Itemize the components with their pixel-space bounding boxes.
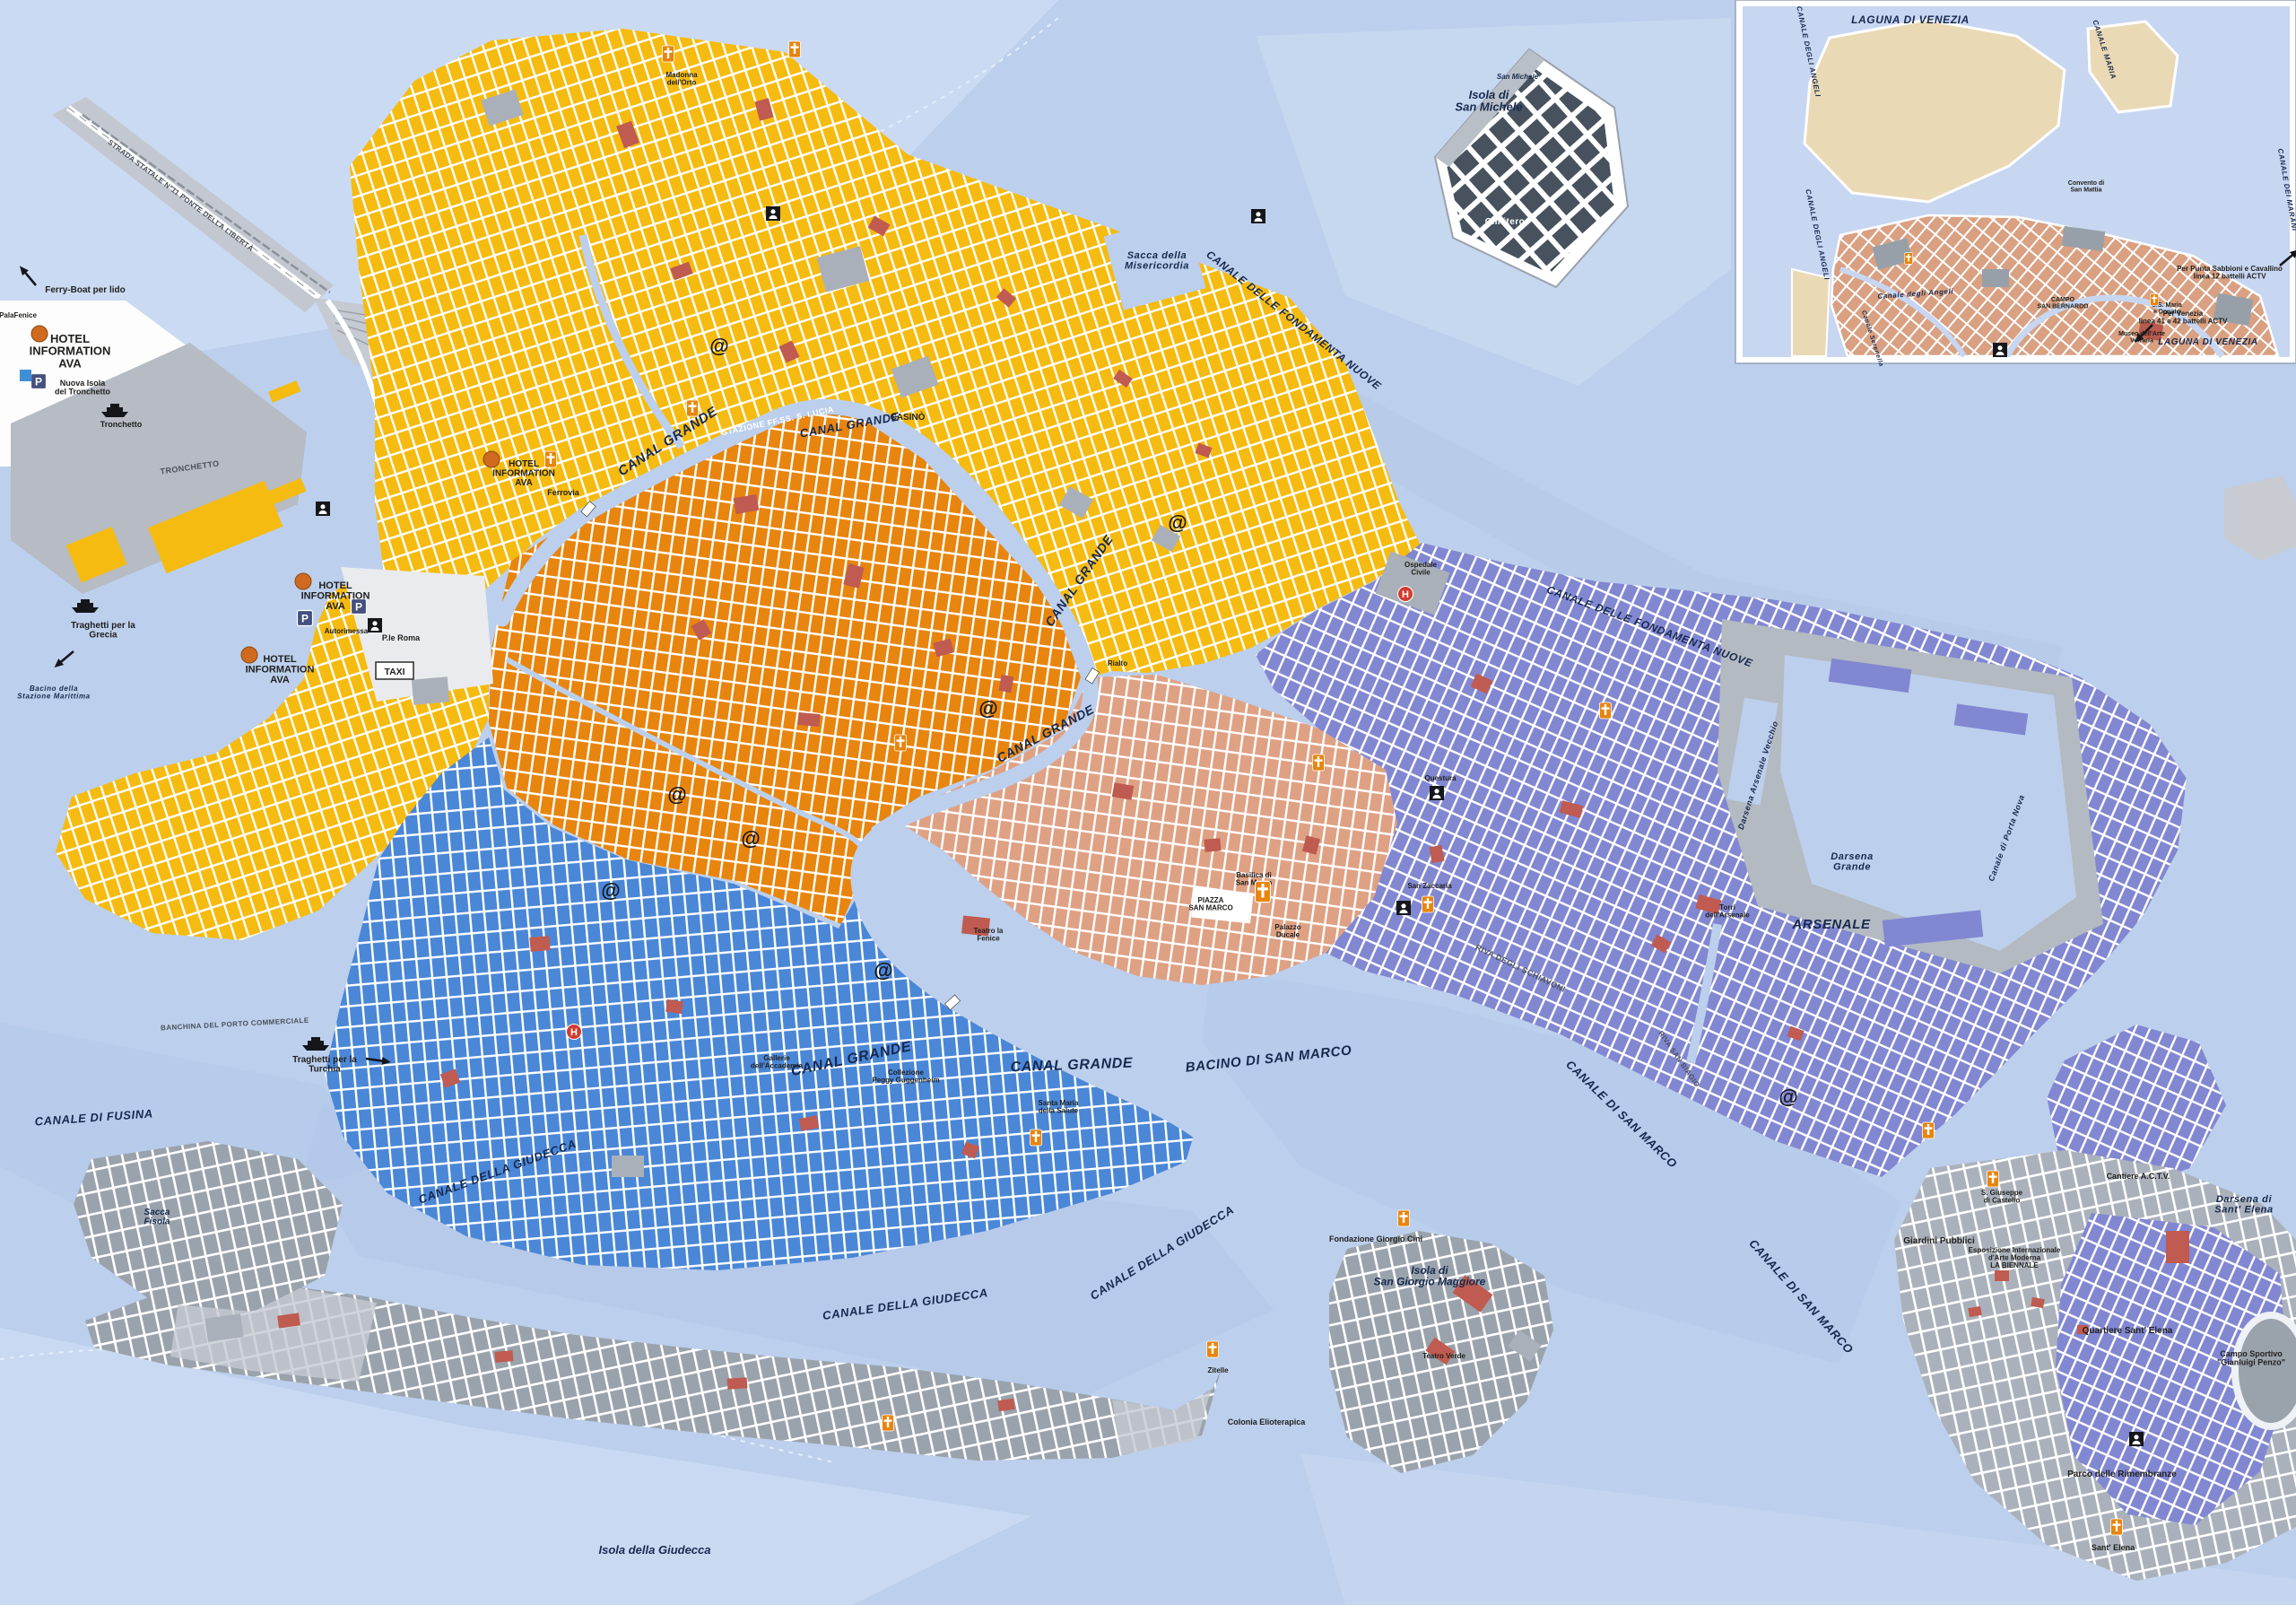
hospital-icon: H: [1398, 587, 1413, 602]
church-icon: [1923, 1122, 1935, 1138]
church-icon: [1987, 1171, 1999, 1187]
internet-point-icon: @: [1168, 511, 1187, 534]
info-point-icon: [1430, 786, 1444, 800]
building-red: [1204, 838, 1221, 852]
label-laguna-di-venezia-2: LAGUNA DI VENEZIA: [2158, 337, 2258, 347]
info-point-icon: [316, 502, 330, 516]
label-san-giuseppe-castello: S. Giuseppedi Castello: [1981, 1189, 2023, 1204]
label-quartiere-sant-elena: Quartiere Sant' Elena: [2083, 1326, 2173, 1336]
hotel-info-dot: [295, 573, 311, 589]
internet-point-icon: @: [601, 879, 620, 902]
info-point-icon: [1396, 901, 1411, 915]
label-fondazione-cini: Fondazione Giorgio Cini: [1329, 1234, 1422, 1243]
label-tronchetto-stop: Tronchetto: [100, 420, 143, 429]
svg-text:TAXI: TAXI: [384, 667, 404, 677]
building-gray: [412, 676, 449, 704]
building-red: [2166, 1231, 2189, 1263]
svg-text:@: @: [874, 959, 892, 981]
label-sant-elena-church: Sant' Elena: [2092, 1543, 2135, 1552]
label-teatro-la-fenice: Teatro laFenice: [974, 927, 1004, 942]
building-gray: [204, 1313, 243, 1341]
svg-text:@: @: [601, 879, 620, 902]
svg-text:P: P: [355, 601, 362, 614]
building-red: [727, 1377, 748, 1390]
label-casino: CASINÒ: [891, 411, 926, 423]
church-icon: [1904, 253, 1912, 265]
internet-point-icon: @: [874, 959, 892, 981]
svg-text:@: @: [709, 335, 728, 357]
svg-text:H: H: [1402, 589, 1409, 600]
inset-murano: [1735, 0, 2296, 363]
hotel-info-dot: [31, 326, 48, 342]
label-sacca-fisola: SaccaFisola: [144, 1208, 170, 1227]
label-campo-sportivo: Campo Sportivo"Gianluigi Penzo": [2217, 1349, 2285, 1366]
label-questura: Questura: [1424, 774, 1457, 782]
label-rialto: Rialto: [1108, 659, 1127, 667]
label-convento-san-mattia: Convento diSan Mattia: [2068, 180, 2104, 193]
label-palafenice: PalaFenice: [0, 311, 37, 319]
svg-text:H: H: [570, 1027, 578, 1038]
label-santa-maria-salute: Santa Mariadella Salute: [1039, 1099, 1079, 1114]
label-giardini-pubblici: Giardini Pubblici: [1903, 1236, 1975, 1246]
label-laguna-di-venezia-1: LAGUNA DI VENEZIA: [1851, 13, 1970, 26]
church-icon: [2150, 294, 2158, 306]
label-colonia-elioterapica: Colonia Elioterapica: [1228, 1417, 1307, 1426]
church-icon: [687, 400, 699, 416]
label-darsena-di-sant-elena: Darsena diSant' Elena: [2214, 1194, 2273, 1216]
label-ferrovia: Ferrovia: [547, 488, 580, 497]
church-icon: [545, 451, 557, 467]
label-san-michele-small: San Michele: [1497, 73, 1539, 81]
church-icon: [1256, 881, 1271, 902]
hospital-icon: H: [567, 1025, 582, 1040]
info-point-icon: [1251, 209, 1265, 223]
svg-text:@: @: [741, 827, 760, 850]
church-icon: [895, 735, 907, 751]
label-piazzale-roma: P.le Roma: [382, 633, 421, 642]
church-icon: [1207, 1341, 1219, 1357]
internet-point-icon: @: [741, 827, 760, 850]
hotel-info-dot: [483, 451, 500, 467]
building-red: [529, 936, 550, 952]
building-red: [495, 1350, 514, 1363]
parking-icon: P: [298, 611, 313, 626]
label-cimitero: Cimitero: [1485, 217, 1526, 227]
hotel-info-square: [20, 370, 31, 381]
venice-map: CANAL GRANDECANAL GRANDECANAL GRANDECANA…: [0, 0, 2296, 1605]
taxi-badge: TAXI: [376, 662, 413, 679]
building-gray: [612, 1156, 644, 1177]
church-icon: [1398, 1210, 1410, 1226]
church-icon: [1422, 896, 1434, 912]
label-darsena-grande: DarsenaGrande: [1831, 851, 1874, 873]
label-nuova-isola-tronchetto: Nuova Isoladel Tronchetto: [55, 379, 111, 396]
label-autorimessa: Autorimessa: [325, 627, 369, 635]
church-icon: [663, 46, 674, 62]
building-red: [997, 1399, 1014, 1411]
church-icon: [2111, 1519, 2123, 1535]
church-icon: [1313, 755, 1325, 771]
label-cantiere-actv: Cantiere A.C.T.V.: [2107, 1172, 2170, 1181]
svg-text:@: @: [978, 697, 997, 720]
label-teatro-verde: Teatro Verde: [1422, 1352, 1465, 1360]
building-red: [1995, 1270, 2009, 1281]
label-madonna-dell-orto: Madonnadell'Orto: [665, 71, 698, 86]
hotel-info-dot: [241, 647, 257, 663]
building-red: [797, 712, 820, 727]
label-isola-della-giudecca: Isola della Giudecca: [599, 1543, 711, 1557]
label-zitelle: Zitelle: [1207, 1366, 1229, 1374]
svg-text:@: @: [667, 783, 686, 806]
church-icon: [789, 41, 801, 57]
internet-point-icon: @: [667, 783, 686, 806]
svg-text:P: P: [35, 376, 42, 388]
info-point-icon: [2129, 1432, 2144, 1446]
label-palazzo-ducale: PalazzoDucale: [1274, 923, 1300, 938]
label-san-zaccaria: San Zaccaria: [1407, 882, 1452, 890]
church-icon: [1031, 1130, 1042, 1146]
church-icon: [883, 1415, 894, 1431]
label-sacca-della-misericordia: Sacca dellaMisericordia: [1125, 250, 1189, 272]
svg-text:@: @: [1168, 511, 1187, 534]
info-point-icon: [1993, 343, 2007, 357]
svg-text:@: @: [1779, 1086, 1797, 1108]
label-ferry-boat-per-lido: Ferry-Boat per lido: [45, 285, 125, 295]
label-parco-rimembranze: Parco delle Rimembranze: [2067, 1470, 2177, 1479]
svg-text:P: P: [301, 613, 309, 625]
internet-point-icon: @: [1779, 1086, 1797, 1108]
building-red: [665, 999, 683, 1014]
internet-point-icon: @: [978, 697, 997, 720]
info-point-icon: [766, 206, 780, 221]
info-point-icon: [368, 618, 382, 632]
internet-point-icon: @: [709, 335, 728, 357]
church-icon: [1600, 702, 1612, 719]
label-arsenale: ARSENALE: [1791, 917, 1871, 932]
parking-icon: P: [31, 374, 47, 389]
